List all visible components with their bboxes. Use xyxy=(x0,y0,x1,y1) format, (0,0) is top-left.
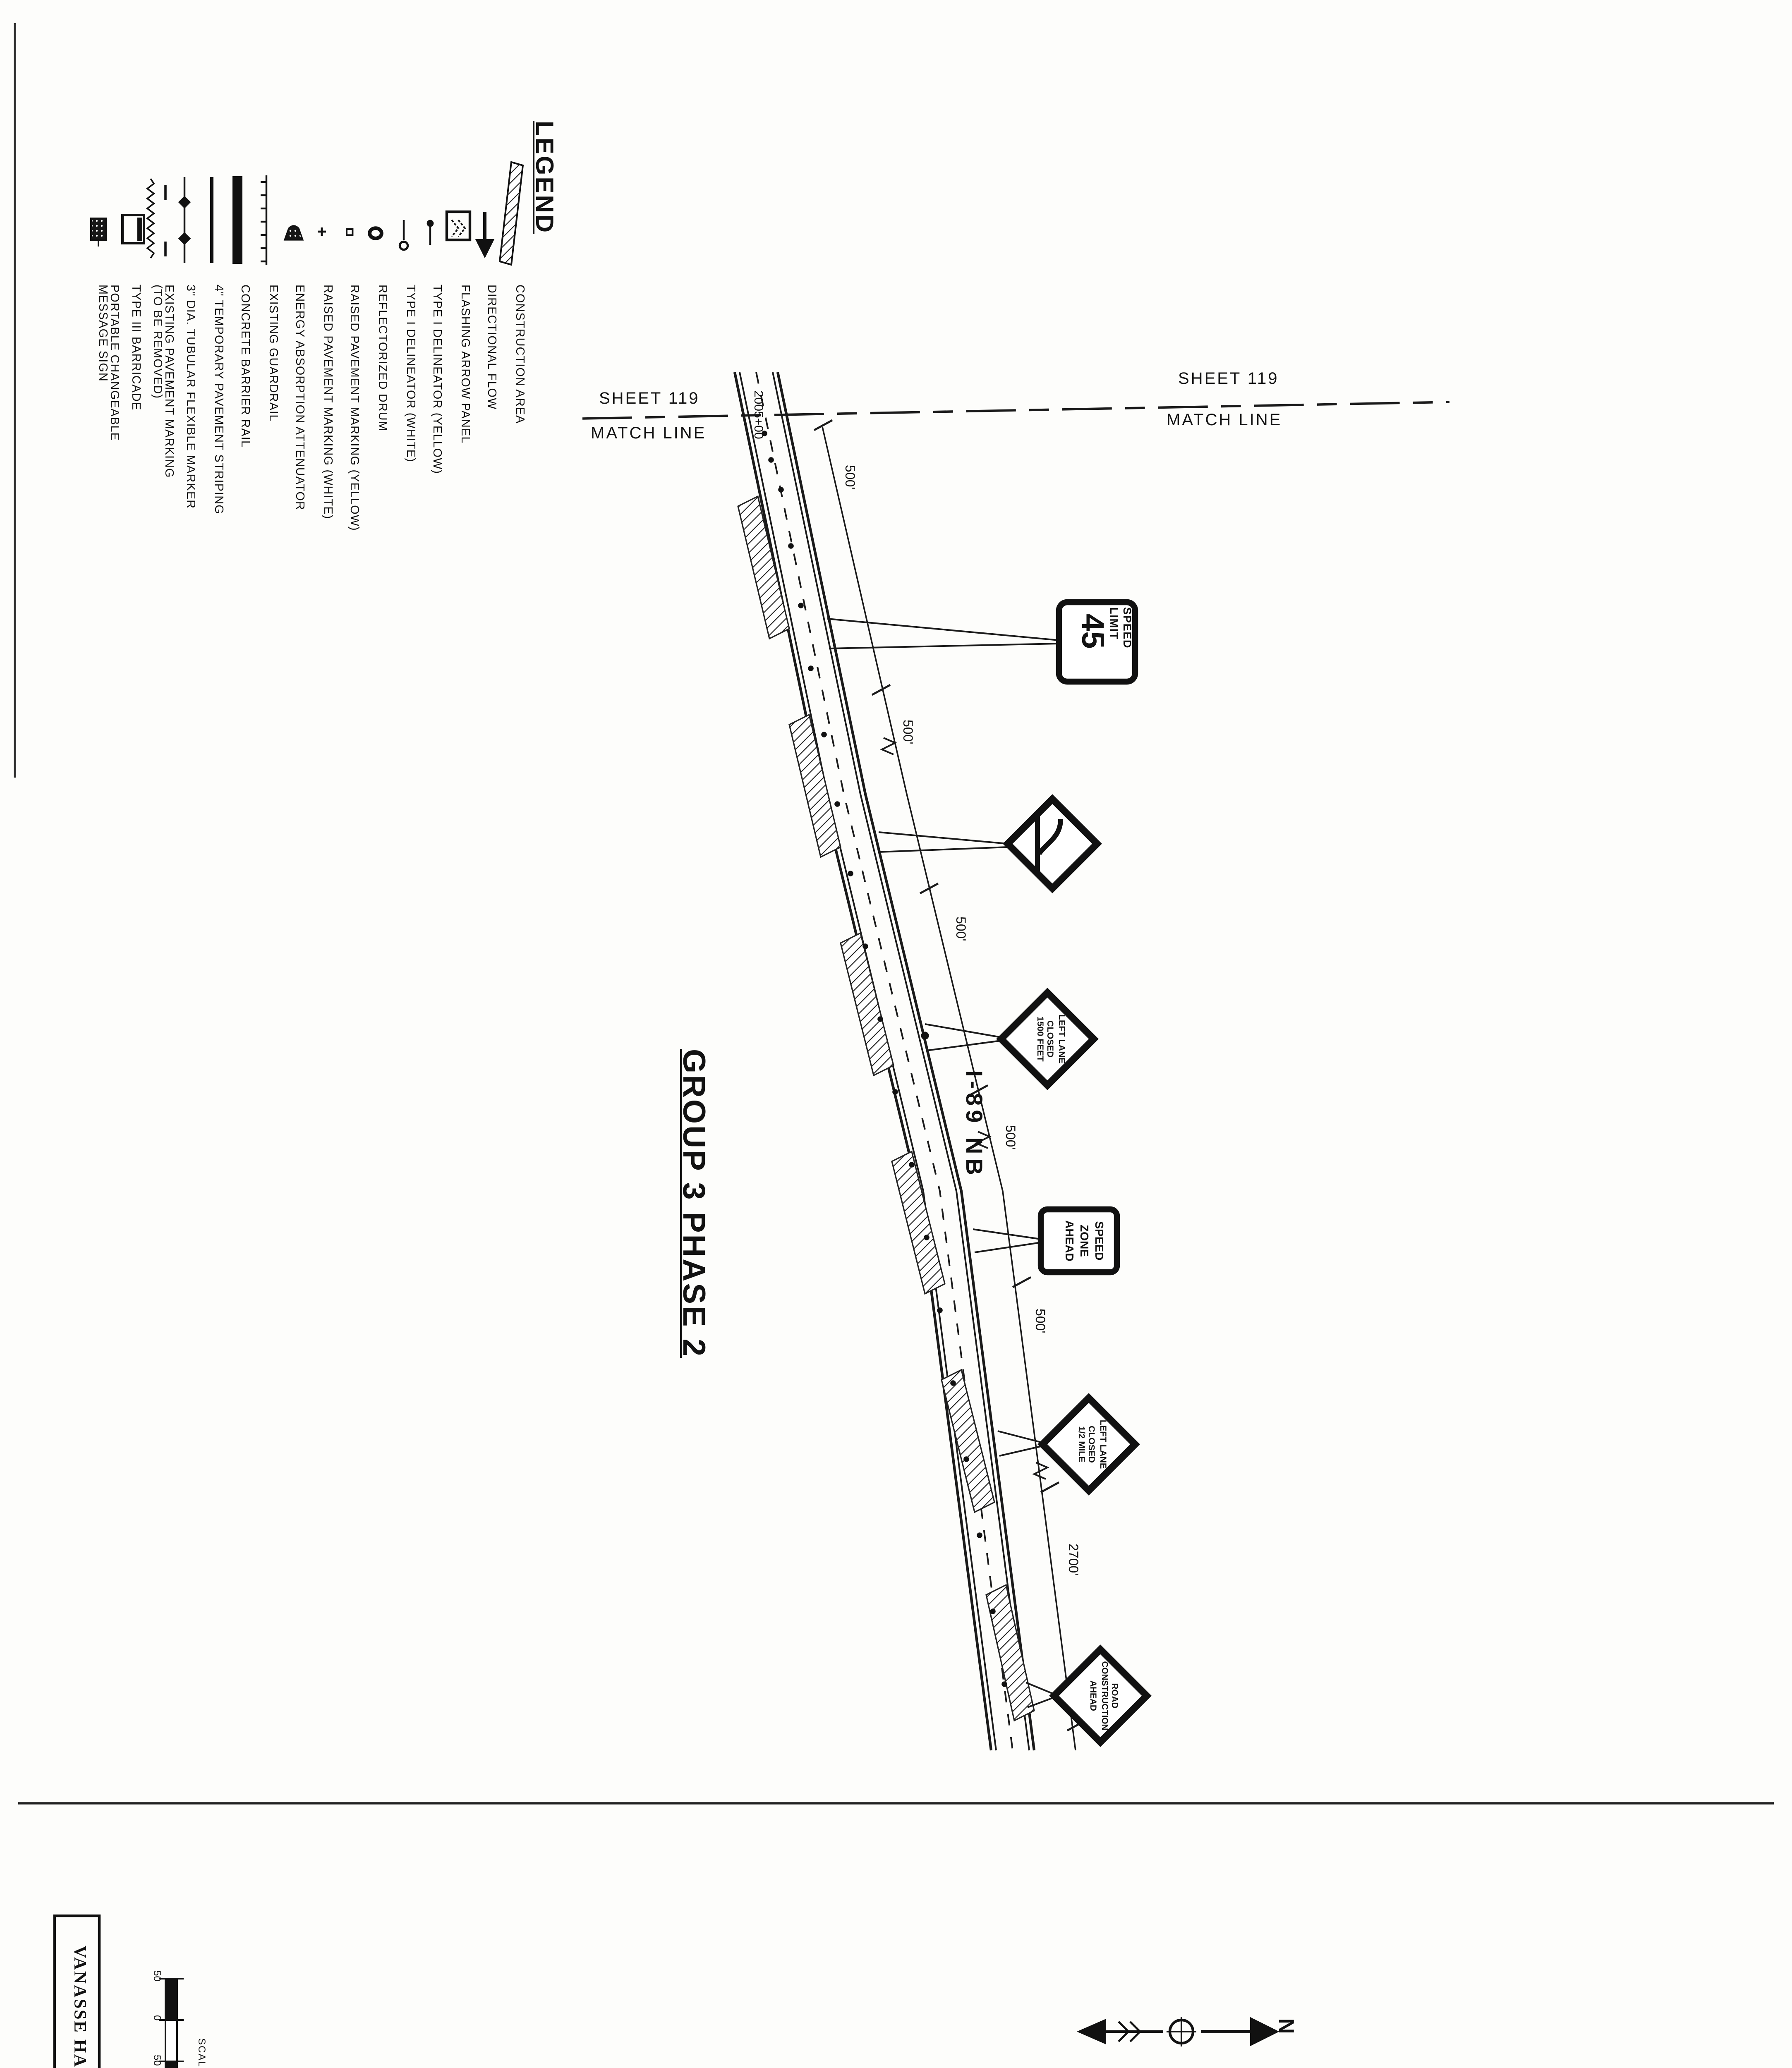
match-line-right-label: MATCH LINE xyxy=(1167,412,1282,430)
existing-guardrail-icon xyxy=(261,175,266,265)
legend-item-label: 3" DIA. TUBULAR FLEXIBLE MARKER xyxy=(184,285,197,509)
match-line-right-sheet: SHEET 119 xyxy=(1178,371,1279,389)
type1-delineator-white-icon xyxy=(400,220,407,250)
firm-name: VANASSE HANGEN BRUSTLIN, INC. xyxy=(69,1946,88,2068)
distance-label: 500' xyxy=(1002,1125,1016,1150)
legend-symbols xyxy=(91,162,523,265)
distance-label: 500' xyxy=(1032,1309,1046,1333)
match-line-top-label: MATCH LINE xyxy=(591,425,706,443)
legend-item-label: RAISED PAVEMENT MARKING (WHITE) xyxy=(322,285,334,519)
concrete-barrier-rail-icon xyxy=(233,177,242,263)
tubular-marker-icon xyxy=(180,177,190,263)
legend-item-label: ENERGY ABSORPTION ATTENUATOR xyxy=(294,285,306,510)
legend-item-label: TYPE I DELINEATOR (WHITE) xyxy=(405,285,417,462)
left-lane-closed-1500-text: LEFT LANE CLOSED 1500 FEET xyxy=(1033,996,1066,1082)
scale-caption: SCALE IN FEET xyxy=(195,2038,205,2068)
reflectorized-drum-icon xyxy=(370,228,382,239)
type3-barricade-icon xyxy=(122,215,144,243)
drawing-title: GROUP 3 PHASE 2 xyxy=(675,1049,708,1358)
station-label: 2005+00 xyxy=(752,390,765,439)
attenuator-icon xyxy=(285,226,303,240)
title-block-borders xyxy=(55,1916,397,2068)
rpm-yellow-icon xyxy=(347,229,352,235)
legend-item-label: EXISTING PAVEMENT MARKING (TO BE REMOVED… xyxy=(151,285,175,478)
speed-zone-ahead-text: SPEED ZONE AHEAD xyxy=(1060,1214,1104,1267)
portable-message-sign-icon xyxy=(91,218,106,247)
legend-item-label: CONSTRUCTION AREA xyxy=(514,285,526,424)
distance-label: 500' xyxy=(841,465,855,490)
match-line xyxy=(582,402,1449,419)
plan-sheet: LEGEND CONSTRUCTION AREA DIRECTIONAL FLO… xyxy=(0,0,1792,2068)
flashing-arrow-panel-icon xyxy=(447,212,470,240)
north-label: N xyxy=(1275,2018,1297,2034)
construction-area-icon xyxy=(500,162,523,265)
route-label: I-89 NB xyxy=(962,1070,986,1179)
legend-item-label: RAISED PAVEMENT MARKING (YELLOW) xyxy=(348,285,361,531)
legend-item-label: EXISTING GUARDRAIL xyxy=(267,285,280,422)
scale-bar xyxy=(159,1979,184,2068)
scale-label: 50 xyxy=(150,1970,161,1982)
legend-item-label: TYPE III BARRICADE xyxy=(130,285,142,410)
speed-limit-sign-text: SPEED LIMIT xyxy=(1107,607,1132,677)
directional-flow-icon xyxy=(477,212,493,256)
merge-sign-shape xyxy=(1008,799,1097,888)
existing-marking-removed-icon xyxy=(147,179,165,258)
road-construction-ahead-text: ROAD CONSTRUCTION AHEAD xyxy=(1087,1651,1119,1740)
scale-label: 0 xyxy=(150,2015,161,2020)
rpm-white-icon xyxy=(318,227,326,236)
legend-item-label: DIRECTIONAL FLOW xyxy=(486,285,498,410)
type1-delineator-yellow-icon xyxy=(428,221,433,245)
legend-item-label: 4" TEMPORARY PAVEMENT STRIPING xyxy=(213,285,225,515)
match-line-top-sheet: SHEET 119 xyxy=(599,390,700,409)
distance-label: 500' xyxy=(952,917,966,941)
distance-label: 2700' xyxy=(1065,1544,1079,1575)
left-lane-closed-half-text: LEFT LANE CLOSED 1/2 MILE xyxy=(1074,1401,1107,1487)
distance-label: 500' xyxy=(899,720,913,744)
legend-item-label: PORTABLE CHANGEABLE MESSAGE SIGN xyxy=(96,285,121,441)
legend-title: LEGEND xyxy=(530,121,556,234)
north-arrow-icon xyxy=(1079,2017,1277,2046)
legend-item-label: FLASHING ARROW PANEL xyxy=(459,285,472,444)
scale-label: 50 xyxy=(150,2055,161,2066)
legend-item-label: CONCRETE BARRIER RAIL xyxy=(239,285,252,448)
legend-item-label: TYPE I DELINEATOR (YELLOW) xyxy=(431,285,443,474)
speed-limit-sign-value: 45 xyxy=(1074,614,1107,673)
construction-area-hatch xyxy=(738,496,1034,1721)
legend-item-label: REFLECTORIZED DRUM xyxy=(376,285,389,431)
